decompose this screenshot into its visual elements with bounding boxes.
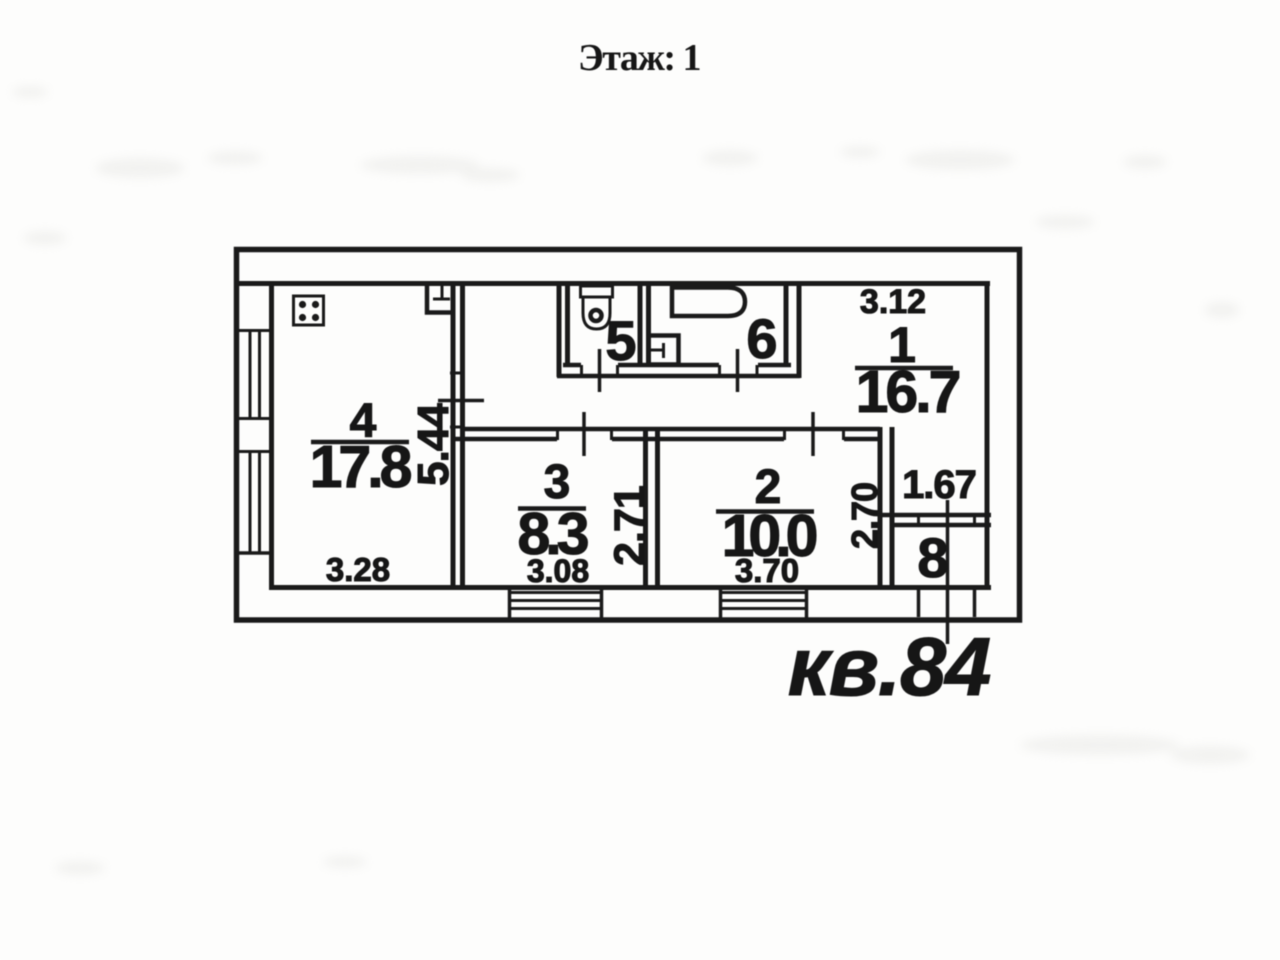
svg-text:3.28: 3.28 [326, 551, 390, 588]
svg-text:6: 6 [746, 307, 777, 370]
svg-text:1.67: 1.67 [902, 463, 976, 507]
svg-text:3.70: 3.70 [735, 552, 799, 589]
svg-text:5.44: 5.44 [409, 403, 458, 486]
svg-text:Этаж: 1: Этаж: 1 [578, 37, 701, 79]
svg-text:8: 8 [917, 526, 948, 589]
svg-text:3.08: 3.08 [527, 553, 589, 589]
svg-text:2.70: 2.70 [844, 483, 885, 549]
svg-text:16.7: 16.7 [856, 359, 960, 425]
svg-text:3.12: 3.12 [860, 283, 926, 321]
svg-text:5: 5 [605, 309, 636, 372]
svg-text:2.71: 2.71 [606, 486, 654, 566]
svg-text:кв.84: кв.84 [788, 620, 991, 713]
svg-text:17.8: 17.8 [310, 434, 411, 500]
